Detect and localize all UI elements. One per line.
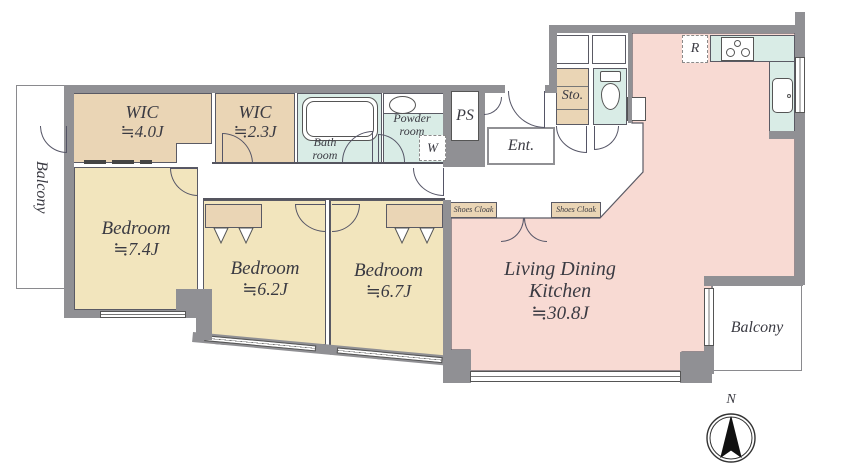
kitchen-side-window (795, 57, 805, 113)
shoes-cloak-left-label: Shoes Cloak (450, 202, 497, 218)
toilet-tank (600, 71, 621, 82)
kitchen-sink (772, 78, 793, 113)
corridor-bottom-wall (203, 198, 445, 200)
vent-slit (140, 160, 152, 164)
right-exterior-wall-upper (795, 12, 805, 58)
closet-bedroom-2 (205, 204, 262, 228)
vent-slit (112, 160, 134, 164)
closet-bedroom-3 (386, 204, 443, 228)
wic-4-entry-notch (176, 143, 212, 163)
storage-label: Sto. (556, 78, 589, 114)
floor-plan: Balcony WIC ≒4.0J WIC ≒2.3J Bath room Po… (0, 0, 843, 476)
ps-label: PS (451, 91, 479, 141)
ldk-label: Living Dining Kitchen ≒30.8J (460, 258, 660, 324)
top-wall-left-section (64, 85, 505, 93)
wic-4-label: WIC ≒4.0J (72, 102, 212, 141)
balcony-right-label: Balcony (712, 285, 802, 371)
washer-label: W (419, 135, 446, 161)
top-wall-right-section (549, 25, 805, 33)
step-wall-block (196, 310, 212, 340)
ldk-bottom-left-block (443, 350, 471, 383)
wic-2-label: WIC ≒2.3J (215, 102, 295, 141)
upper-cabinet-right (592, 35, 626, 64)
faucet-dot (787, 94, 791, 98)
burner (741, 48, 750, 57)
bedroom-2-label: Bedroom ≒6.2J (203, 258, 327, 299)
bedroom-1-label: Bedroom ≒7.4J (74, 218, 198, 259)
toilet-right-wall (628, 33, 632, 123)
upper-cabinet-left (556, 35, 589, 64)
bathroom-label: Bath room (297, 136, 353, 163)
vent-slit (84, 160, 106, 164)
entrance-label: Ent. (487, 127, 555, 165)
bedroom-3-label: Bedroom ≒6.7J (330, 260, 447, 301)
balcony-left-label: Balcony (16, 85, 66, 289)
compass-n-label: N (716, 392, 746, 408)
refrigerator-label: R (682, 35, 708, 63)
stove (721, 37, 754, 61)
burner (734, 40, 741, 47)
burner (726, 48, 735, 57)
kitchen-counter-end (769, 131, 797, 139)
shoes-cloak-right-label: Shoes Cloak (551, 202, 601, 218)
ldk-bottom-window (470, 371, 681, 382)
bedroom-1-window (100, 311, 186, 318)
